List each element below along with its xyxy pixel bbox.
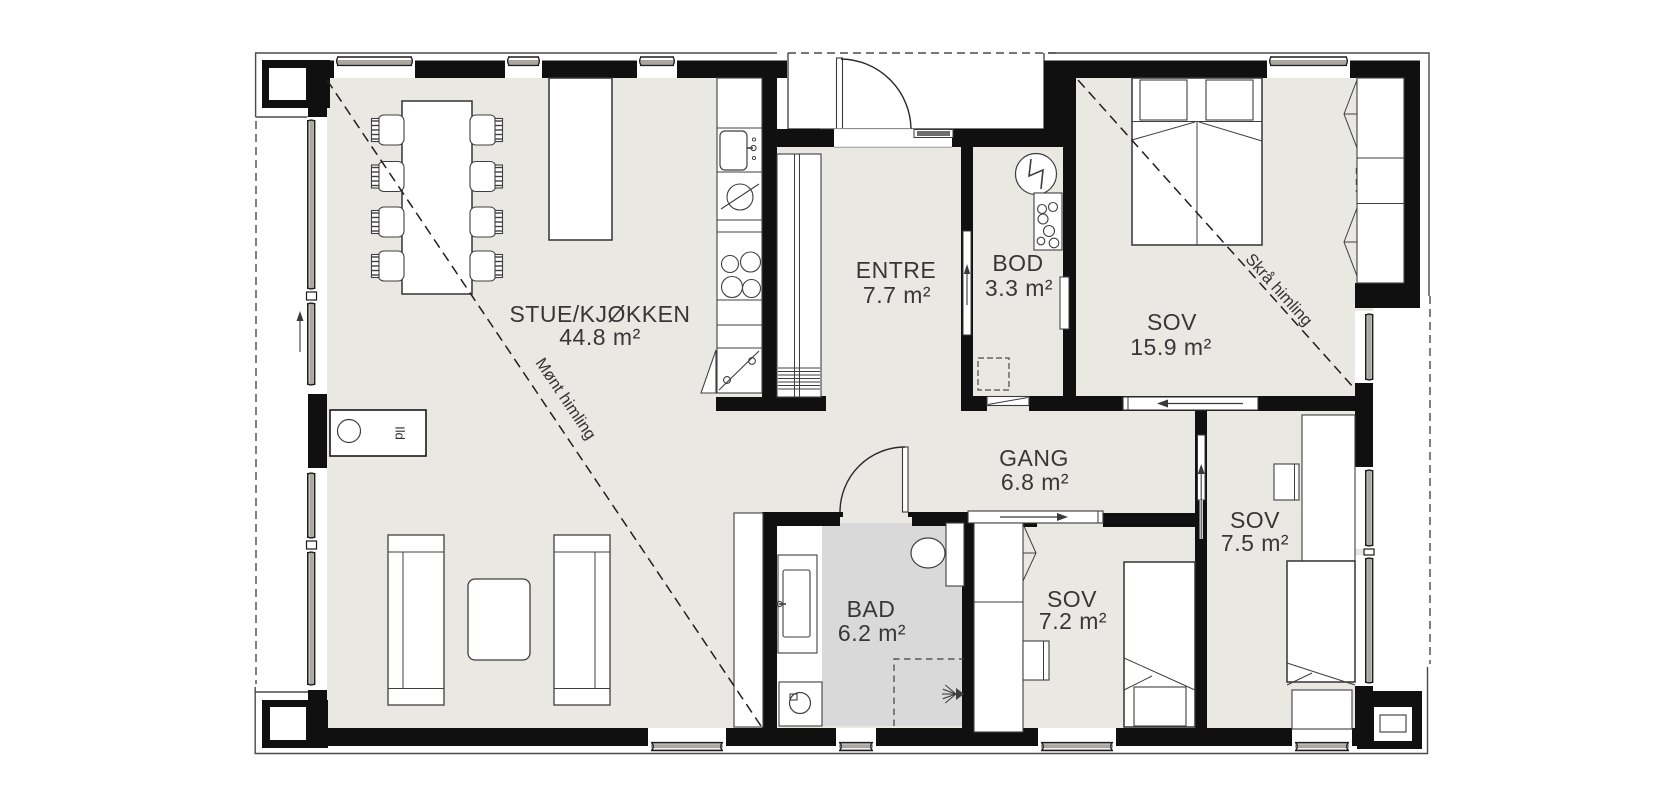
svg-text:15.9 m²: 15.9 m²: [1130, 334, 1211, 360]
svg-text:44.8 m²: 44.8 m²: [559, 324, 640, 350]
svg-text:BOD: BOD: [992, 250, 1043, 276]
svg-text:7.2 m²: 7.2 m²: [1039, 608, 1107, 634]
svg-text:6.8 m²: 6.8 m²: [1001, 469, 1069, 495]
svg-text:6.2 m²: 6.2 m²: [838, 620, 906, 646]
svg-text:7.5 m²: 7.5 m²: [1221, 530, 1289, 556]
svg-text:GANG: GANG: [999, 445, 1069, 471]
svg-text:3.3 m²: 3.3 m²: [985, 275, 1053, 301]
svg-text:SOV: SOV: [1147, 309, 1197, 335]
svg-text:BAD: BAD: [847, 596, 896, 622]
svg-text:7.7 m²: 7.7 m²: [863, 282, 931, 308]
svg-text:ENTRE: ENTRE: [856, 257, 936, 283]
svg-text:Ild: Ild: [393, 426, 408, 440]
